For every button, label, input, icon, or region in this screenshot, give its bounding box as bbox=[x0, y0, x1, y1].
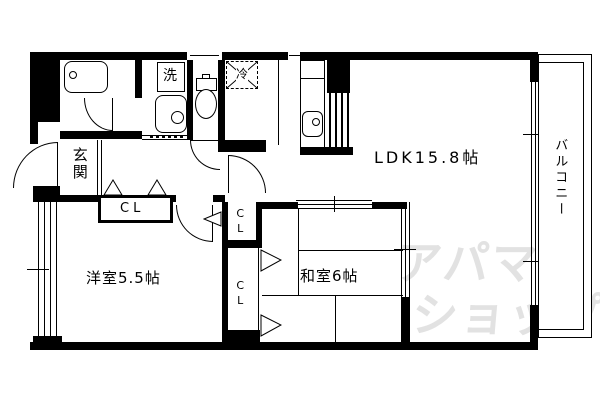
wall-right-bottom bbox=[530, 305, 538, 342]
closet-lower-door-triangle-2 bbox=[260, 314, 282, 337]
bath-door-arc bbox=[84, 98, 113, 131]
tatami-line-horizontal-1 bbox=[298, 250, 403, 251]
kitchen-hatch-line4 bbox=[347, 93, 349, 148]
toilet-bowl-icon bbox=[195, 89, 217, 119]
wall-bottom bbox=[30, 342, 538, 350]
wall-left-pillar bbox=[30, 52, 60, 122]
wall-japanese-right-bottom bbox=[401, 297, 410, 342]
entrance-step-line2 bbox=[101, 140, 102, 195]
wall-closet-strip-left bbox=[222, 202, 228, 342]
refrigerator-label: 冷 bbox=[236, 67, 248, 82]
washbasin-bowl-icon bbox=[171, 111, 184, 124]
japanese-room-label: 和室6帖 bbox=[300, 267, 359, 286]
kitchen-hatch-line3 bbox=[341, 93, 343, 148]
balcony-label: バルコニー bbox=[551, 138, 567, 218]
ldk-door-arc bbox=[228, 155, 266, 193]
wall-corridor-bottom-2 bbox=[213, 195, 225, 202]
kitchen-hatch-line1 bbox=[329, 93, 331, 148]
washroom-boundary-line2 bbox=[142, 139, 188, 140]
japanese-top-window-tick bbox=[334, 196, 335, 212]
western-room-label: 洋室5.5帖 bbox=[86, 269, 161, 288]
wall-left-upper bbox=[30, 122, 38, 144]
wall-bath-bottom bbox=[60, 131, 142, 139]
toilet-tank-knob-icon bbox=[202, 74, 210, 79]
window-left-line1 bbox=[38, 202, 39, 338]
entrance-step-line1 bbox=[97, 140, 98, 195]
wall-closet-divider bbox=[222, 240, 260, 248]
wall-japanese-top-west bbox=[256, 202, 298, 209]
window-right-line1 bbox=[531, 82, 532, 305]
bathtub-drain-icon bbox=[69, 71, 77, 79]
kitchen-pillar bbox=[327, 58, 350, 93]
kitchen-faucet-icon bbox=[312, 118, 320, 126]
ldk-label: LDK15.8帖 bbox=[374, 148, 481, 168]
closet-lower-label: CL bbox=[233, 279, 247, 309]
window-above-toilet bbox=[190, 55, 219, 56]
japanese-right-sliding-tick bbox=[394, 249, 416, 250]
closet-upper-label: CL bbox=[233, 207, 247, 237]
folding-door-triangle-2 bbox=[147, 179, 167, 196]
washroom-sliding-door bbox=[150, 136, 185, 138]
entrance-label: 玄関 bbox=[70, 147, 89, 181]
hall-closet-label: CL bbox=[120, 201, 144, 217]
window-left-tick bbox=[27, 269, 49, 270]
tatami-line-horizontal-2 bbox=[262, 295, 403, 296]
wall-toilet-right bbox=[218, 60, 225, 152]
tatami-line-vertical-2 bbox=[335, 295, 336, 342]
kitchen-counter-divider bbox=[300, 78, 325, 79]
kitchen-hatch-line2 bbox=[335, 93, 337, 148]
washer-label: 洗 bbox=[163, 68, 177, 86]
wall-closet-strip-bottom bbox=[222, 330, 260, 342]
closet-upper-door-triangle bbox=[203, 211, 222, 227]
floor-plan: アパマン ショップ TM バルコニー 洗 bbox=[0, 0, 600, 400]
wall-bath-washroom bbox=[135, 58, 142, 98]
wall-stub-ldk-entry bbox=[218, 140, 266, 152]
folding-door-triangle-1 bbox=[103, 179, 123, 196]
window-left-line3 bbox=[50, 202, 51, 338]
toilet-door-arc bbox=[190, 140, 220, 170]
window-left-line2 bbox=[44, 202, 45, 338]
tatami-line-vertical-1 bbox=[298, 209, 299, 295]
wall-kitchen-bottom bbox=[300, 147, 353, 155]
wall-toilet-left bbox=[187, 60, 193, 140]
window-above-kitchen bbox=[289, 55, 300, 56]
wall-right-top bbox=[530, 52, 538, 82]
window-left-line4 bbox=[56, 202, 57, 338]
window-right-line2 bbox=[535, 82, 536, 305]
closet-lower-door-triangle-1 bbox=[260, 249, 282, 272]
closet-lower-right-line bbox=[258, 248, 259, 330]
entrance-door-arc bbox=[13, 142, 58, 188]
fridge-nook-line bbox=[278, 58, 279, 145]
